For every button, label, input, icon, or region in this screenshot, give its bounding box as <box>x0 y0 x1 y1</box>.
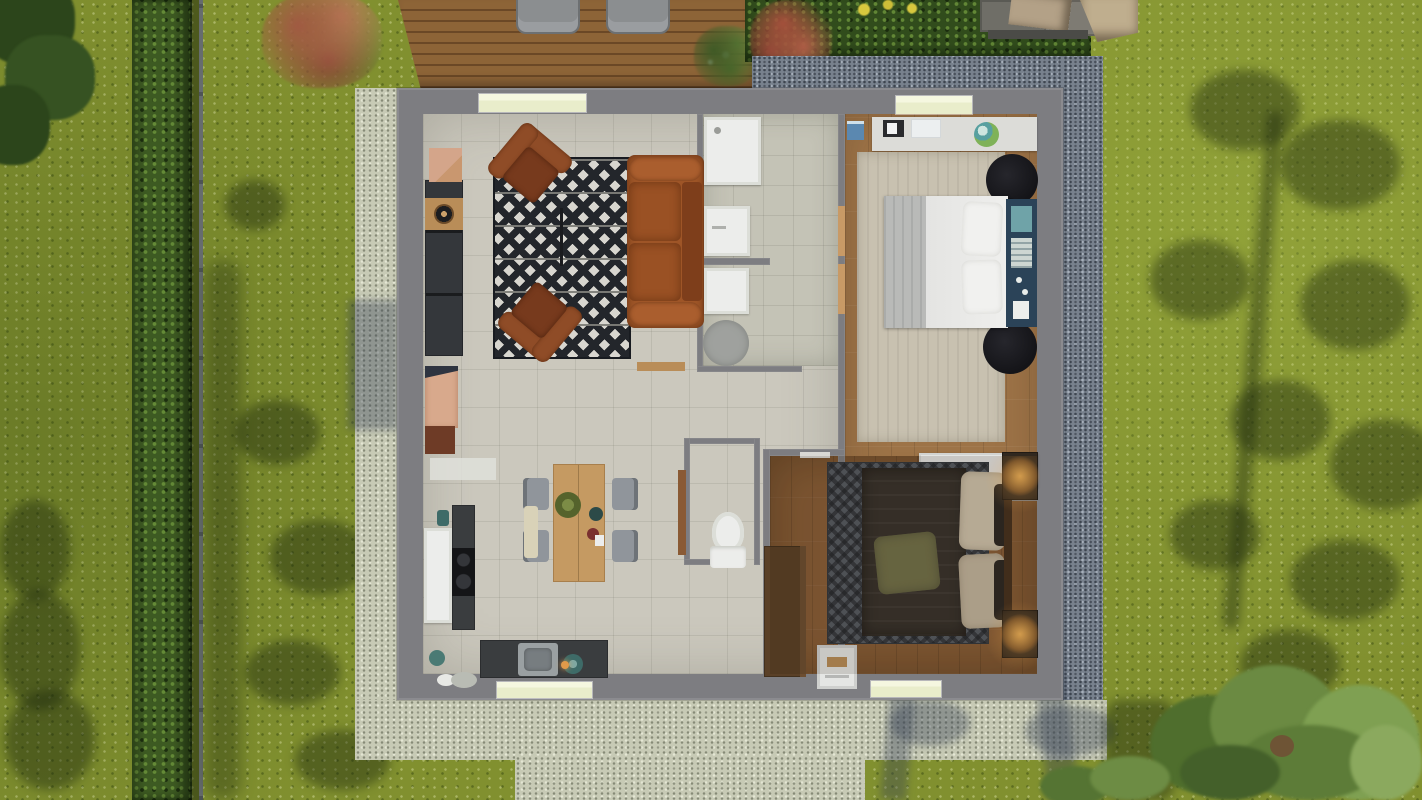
wc-wall <box>754 438 760 565</box>
globe <box>974 122 999 147</box>
tree-shadow <box>1290 540 1400 620</box>
step-stool <box>817 645 857 689</box>
washing-machine <box>704 268 749 314</box>
olive-pillow <box>873 531 941 595</box>
table-lamp <box>1000 456 1040 496</box>
dark-gravel-border <box>752 56 1103 89</box>
tree-trunk <box>1270 735 1294 757</box>
bench <box>524 506 538 558</box>
faucet <box>712 226 726 229</box>
gravel-patio <box>355 700 1107 760</box>
round-rug <box>703 320 749 366</box>
stool-step <box>825 655 849 669</box>
tree-shadow <box>0 500 70 600</box>
shower-tray <box>704 117 761 185</box>
sink-vanity <box>704 206 750 256</box>
corner-tree <box>1150 655 1422 800</box>
napkin <box>595 535 604 546</box>
headboard-dot <box>1022 289 1028 295</box>
window-kitchen <box>497 682 592 698</box>
dining-chair <box>612 530 638 562</box>
house <box>397 88 1063 700</box>
garden-tent <box>980 0 1138 44</box>
wardrobe <box>764 546 806 677</box>
shrub-leaves <box>1090 756 1170 800</box>
door-threshold <box>838 264 845 314</box>
table-lamp <box>1000 614 1040 654</box>
dark-gravel-border <box>1063 56 1103 702</box>
tree-shadow <box>1300 260 1410 350</box>
tree-shadow <box>1025 706 1115 756</box>
fridge <box>424 528 452 623</box>
tree-shadow <box>348 300 398 430</box>
hedge-row <box>132 0 192 800</box>
kettle <box>437 510 449 526</box>
headboard-cushion <box>1011 206 1032 232</box>
shower-drain <box>714 127 721 134</box>
sun-lounger <box>606 0 670 34</box>
round-rug <box>983 320 1037 374</box>
tree-canopy <box>1180 745 1280 800</box>
window-bedroom2 <box>871 681 941 697</box>
tree-shadow <box>1230 380 1330 460</box>
wall-shelf <box>429 148 462 182</box>
wc-wall <box>684 438 760 444</box>
pillow <box>961 259 1003 314</box>
sink-basin <box>524 648 552 671</box>
sofa-armrest <box>629 157 702 181</box>
floor-mat <box>451 672 477 688</box>
tree-shadow <box>1150 240 1250 320</box>
side-bench <box>637 362 685 371</box>
interior-wall <box>697 258 770 265</box>
door-threshold <box>838 206 845 256</box>
kitchen-sink <box>518 643 558 676</box>
garden-fence <box>199 0 203 800</box>
dining-table <box>553 464 605 582</box>
tent-edge <box>988 30 1088 39</box>
floor-lamp <box>560 208 563 266</box>
cooktop <box>452 548 475 596</box>
jar <box>429 650 445 666</box>
tree-canopy <box>1350 725 1422 800</box>
tree-shadow <box>5 690 95 790</box>
headboard-dot <box>1016 277 1022 283</box>
pillow <box>961 201 1004 257</box>
storage-bin <box>847 121 864 140</box>
door-leaf <box>678 470 686 555</box>
sofa-cushion <box>629 182 681 241</box>
double-bed <box>884 196 1008 328</box>
headboard <box>1006 199 1037 327</box>
sofa-cushion <box>629 243 681 301</box>
gray-blanket <box>884 196 928 328</box>
sofa-back <box>682 182 702 301</box>
window-bedroom1 <box>896 96 972 114</box>
leather-sofa <box>627 155 704 328</box>
stool-rung <box>825 675 849 678</box>
toilet-cistern <box>710 546 746 568</box>
autumn-shrub <box>262 0 382 88</box>
tree-shadow <box>235 400 320 465</box>
laptop-screen <box>887 123 897 134</box>
double-bed <box>862 468 1012 636</box>
candle <box>561 661 569 669</box>
cabinet-base <box>425 426 455 454</box>
laptop <box>883 120 904 137</box>
sofa-armrest <box>629 302 702 326</box>
tree-shadow <box>245 640 340 705</box>
dining-chair <box>612 478 638 510</box>
gravel-patio <box>515 756 865 800</box>
door-leaf <box>800 452 830 458</box>
headboard-photo <box>1013 301 1029 319</box>
window-living <box>479 94 586 112</box>
papers <box>911 119 941 138</box>
tree-shadow <box>1170 500 1260 570</box>
yellow-flowers <box>852 0 932 24</box>
floor-plan-scene <box>0 0 1422 800</box>
tree-shadow <box>225 180 285 230</box>
bowl <box>589 507 603 521</box>
tree-shadow <box>890 700 970 746</box>
green-plate <box>555 492 581 518</box>
interior-wall <box>697 366 802 372</box>
doormat <box>430 458 496 480</box>
sun-lounger <box>516 0 580 34</box>
tree-shadow <box>205 260 241 800</box>
corner-shrub <box>1040 756 1170 800</box>
vinyl-record <box>434 204 454 224</box>
headboard-cushion <box>1011 238 1032 268</box>
tree-shadow <box>1190 70 1300 150</box>
tree-shadow <box>1280 120 1400 210</box>
